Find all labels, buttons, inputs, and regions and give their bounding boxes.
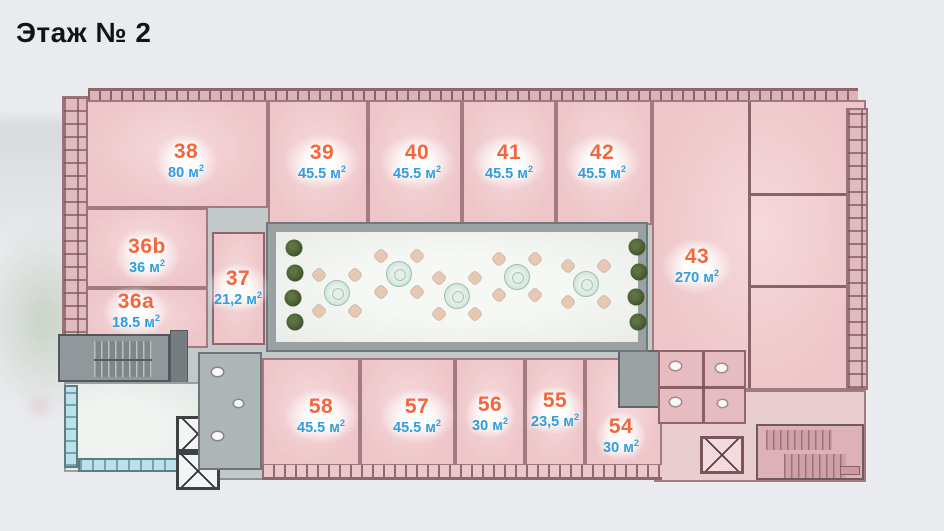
unit-area-sup: 2 xyxy=(574,412,579,422)
plant-icon xyxy=(629,239,646,256)
unit-area-sup: 2 xyxy=(634,438,639,448)
unit-area: 45.5 м2 xyxy=(485,164,533,183)
unit-area: 45.5 м2 xyxy=(297,418,345,437)
unit-area-sup: 2 xyxy=(714,268,719,278)
unit-number: 57 xyxy=(393,395,441,418)
unit-area: 36 м2 xyxy=(128,258,166,277)
table-top xyxy=(573,271,599,297)
unit-number: 41 xyxy=(485,141,533,164)
glass-wall-bottom xyxy=(78,458,192,472)
toilet-icon xyxy=(670,398,681,406)
unit-number: 43 xyxy=(675,245,719,268)
unit-area-sup: 2 xyxy=(436,418,441,428)
unit-number: 36b xyxy=(128,235,166,258)
toilet-icon xyxy=(212,368,223,376)
unit-label-42[interactable]: 42 45.5 м2 xyxy=(564,134,640,190)
unit-area-sup: 2 xyxy=(257,290,262,300)
unit-number: 40 xyxy=(393,141,441,164)
wall xyxy=(751,193,846,196)
stairs-steps xyxy=(766,430,832,450)
unit-area: 270 м2 xyxy=(675,268,719,287)
stair-landing xyxy=(840,466,860,475)
sink-icon xyxy=(718,400,727,407)
cafe-table xyxy=(502,262,532,292)
unit-label-39[interactable]: 39 45.5 м2 xyxy=(284,134,360,190)
cafe-table xyxy=(384,259,414,289)
staircase-top-left xyxy=(58,334,170,382)
sink-icon xyxy=(234,400,243,407)
unit-number: 42 xyxy=(578,141,626,164)
unit-label-41[interactable]: 41 45.5 м2 xyxy=(471,134,547,190)
unit-area-sup: 2 xyxy=(528,164,533,174)
glass-wall-left xyxy=(64,385,78,468)
unit-area: 30 м2 xyxy=(472,416,508,435)
unit-label-54[interactable]: 54 30 м2 xyxy=(595,411,647,461)
unit-label-55[interactable]: 55 23,5 м2 xyxy=(525,385,585,435)
restroom-right xyxy=(658,350,746,424)
table-top xyxy=(444,283,470,309)
unit-number: 36a xyxy=(112,290,160,313)
stairs-steps xyxy=(94,341,152,377)
unit-area: 80 м2 xyxy=(168,163,204,182)
unit-number: 39 xyxy=(298,141,346,164)
unit-area-sup: 2 xyxy=(341,164,346,174)
unit-number: 58 xyxy=(297,395,345,418)
plant-icon xyxy=(628,289,645,306)
unit-area: 45.5 м2 xyxy=(578,164,626,183)
unit-area: 21,2 м2 xyxy=(214,290,262,309)
unit-area: 45.5 м2 xyxy=(393,418,441,437)
plant-icon xyxy=(285,290,302,307)
unit-area-sup: 2 xyxy=(155,313,160,323)
floor-plan-page: { "header": { "title": "Этаж № 2" }, "co… xyxy=(0,0,944,531)
unit-area: 45.5 м2 xyxy=(393,164,441,183)
unit-area: 18.5 м2 xyxy=(112,313,160,332)
unit-label-57[interactable]: 57 45.5 м2 xyxy=(379,388,455,444)
unit-number: 55 xyxy=(531,389,579,412)
unit-label-37[interactable]: 37 21,2 м2 xyxy=(206,263,270,313)
unit-label-40[interactable]: 40 45.5 м2 xyxy=(379,134,455,190)
plant-icon xyxy=(286,240,303,257)
cafe-table xyxy=(571,269,601,299)
toilet-icon xyxy=(212,432,223,440)
unit-label-36b[interactable]: 36b 36 м2 xyxy=(114,228,180,284)
unit-area-sup: 2 xyxy=(160,258,165,268)
plant-icon xyxy=(287,314,304,331)
staircase-bottom-right xyxy=(756,424,864,480)
unit-area: 23,5 м2 xyxy=(531,412,579,431)
unit-area-sup: 2 xyxy=(621,164,626,174)
unit-area-sup: 2 xyxy=(503,416,508,426)
table-top xyxy=(386,261,412,287)
plant-icon xyxy=(287,265,304,282)
window-facade-bottom xyxy=(262,464,662,480)
unit-label-56[interactable]: 56 30 м2 xyxy=(464,389,516,439)
table-top xyxy=(324,280,350,306)
unit-area-sup: 2 xyxy=(199,163,204,173)
unit-label-43[interactable]: 43 270 м2 xyxy=(661,238,733,294)
wall xyxy=(751,285,846,288)
unit-label-58[interactable]: 58 45.5 м2 xyxy=(283,388,359,444)
restroom-left xyxy=(198,352,262,470)
unit-label-36a[interactable]: 36a 18.5 м2 xyxy=(102,286,170,336)
window-facade-top xyxy=(88,88,858,102)
wall-block xyxy=(170,330,188,384)
plant-icon xyxy=(630,314,647,331)
toilet-icon xyxy=(670,362,681,370)
unit-area: 45.5 м2 xyxy=(298,164,346,183)
window-facade-left xyxy=(62,96,88,348)
unit-number: 37 xyxy=(214,267,262,290)
stairs-steps xyxy=(784,454,846,478)
floor-plan: 38 80 м2 39 45.5 м2 40 45.5 м2 41 45.5 м… xyxy=(0,0,944,531)
unit-number: 54 xyxy=(603,415,639,438)
wall xyxy=(748,102,751,388)
plant-icon xyxy=(631,264,648,281)
unit-number: 38 xyxy=(168,140,204,163)
unit-area-sup: 2 xyxy=(340,418,345,428)
unit-area: 30 м2 xyxy=(603,438,639,457)
unit-area-sup: 2 xyxy=(436,164,441,174)
unit-label-38[interactable]: 38 80 м2 xyxy=(154,133,218,189)
table-top xyxy=(504,264,530,290)
cafe-table xyxy=(442,281,472,311)
toilet-icon xyxy=(716,364,727,372)
window-facade-right xyxy=(846,108,868,390)
cafe-table xyxy=(322,278,352,308)
elevator-icon xyxy=(700,436,744,474)
unit-number: 56 xyxy=(472,393,508,416)
wall xyxy=(702,352,705,422)
